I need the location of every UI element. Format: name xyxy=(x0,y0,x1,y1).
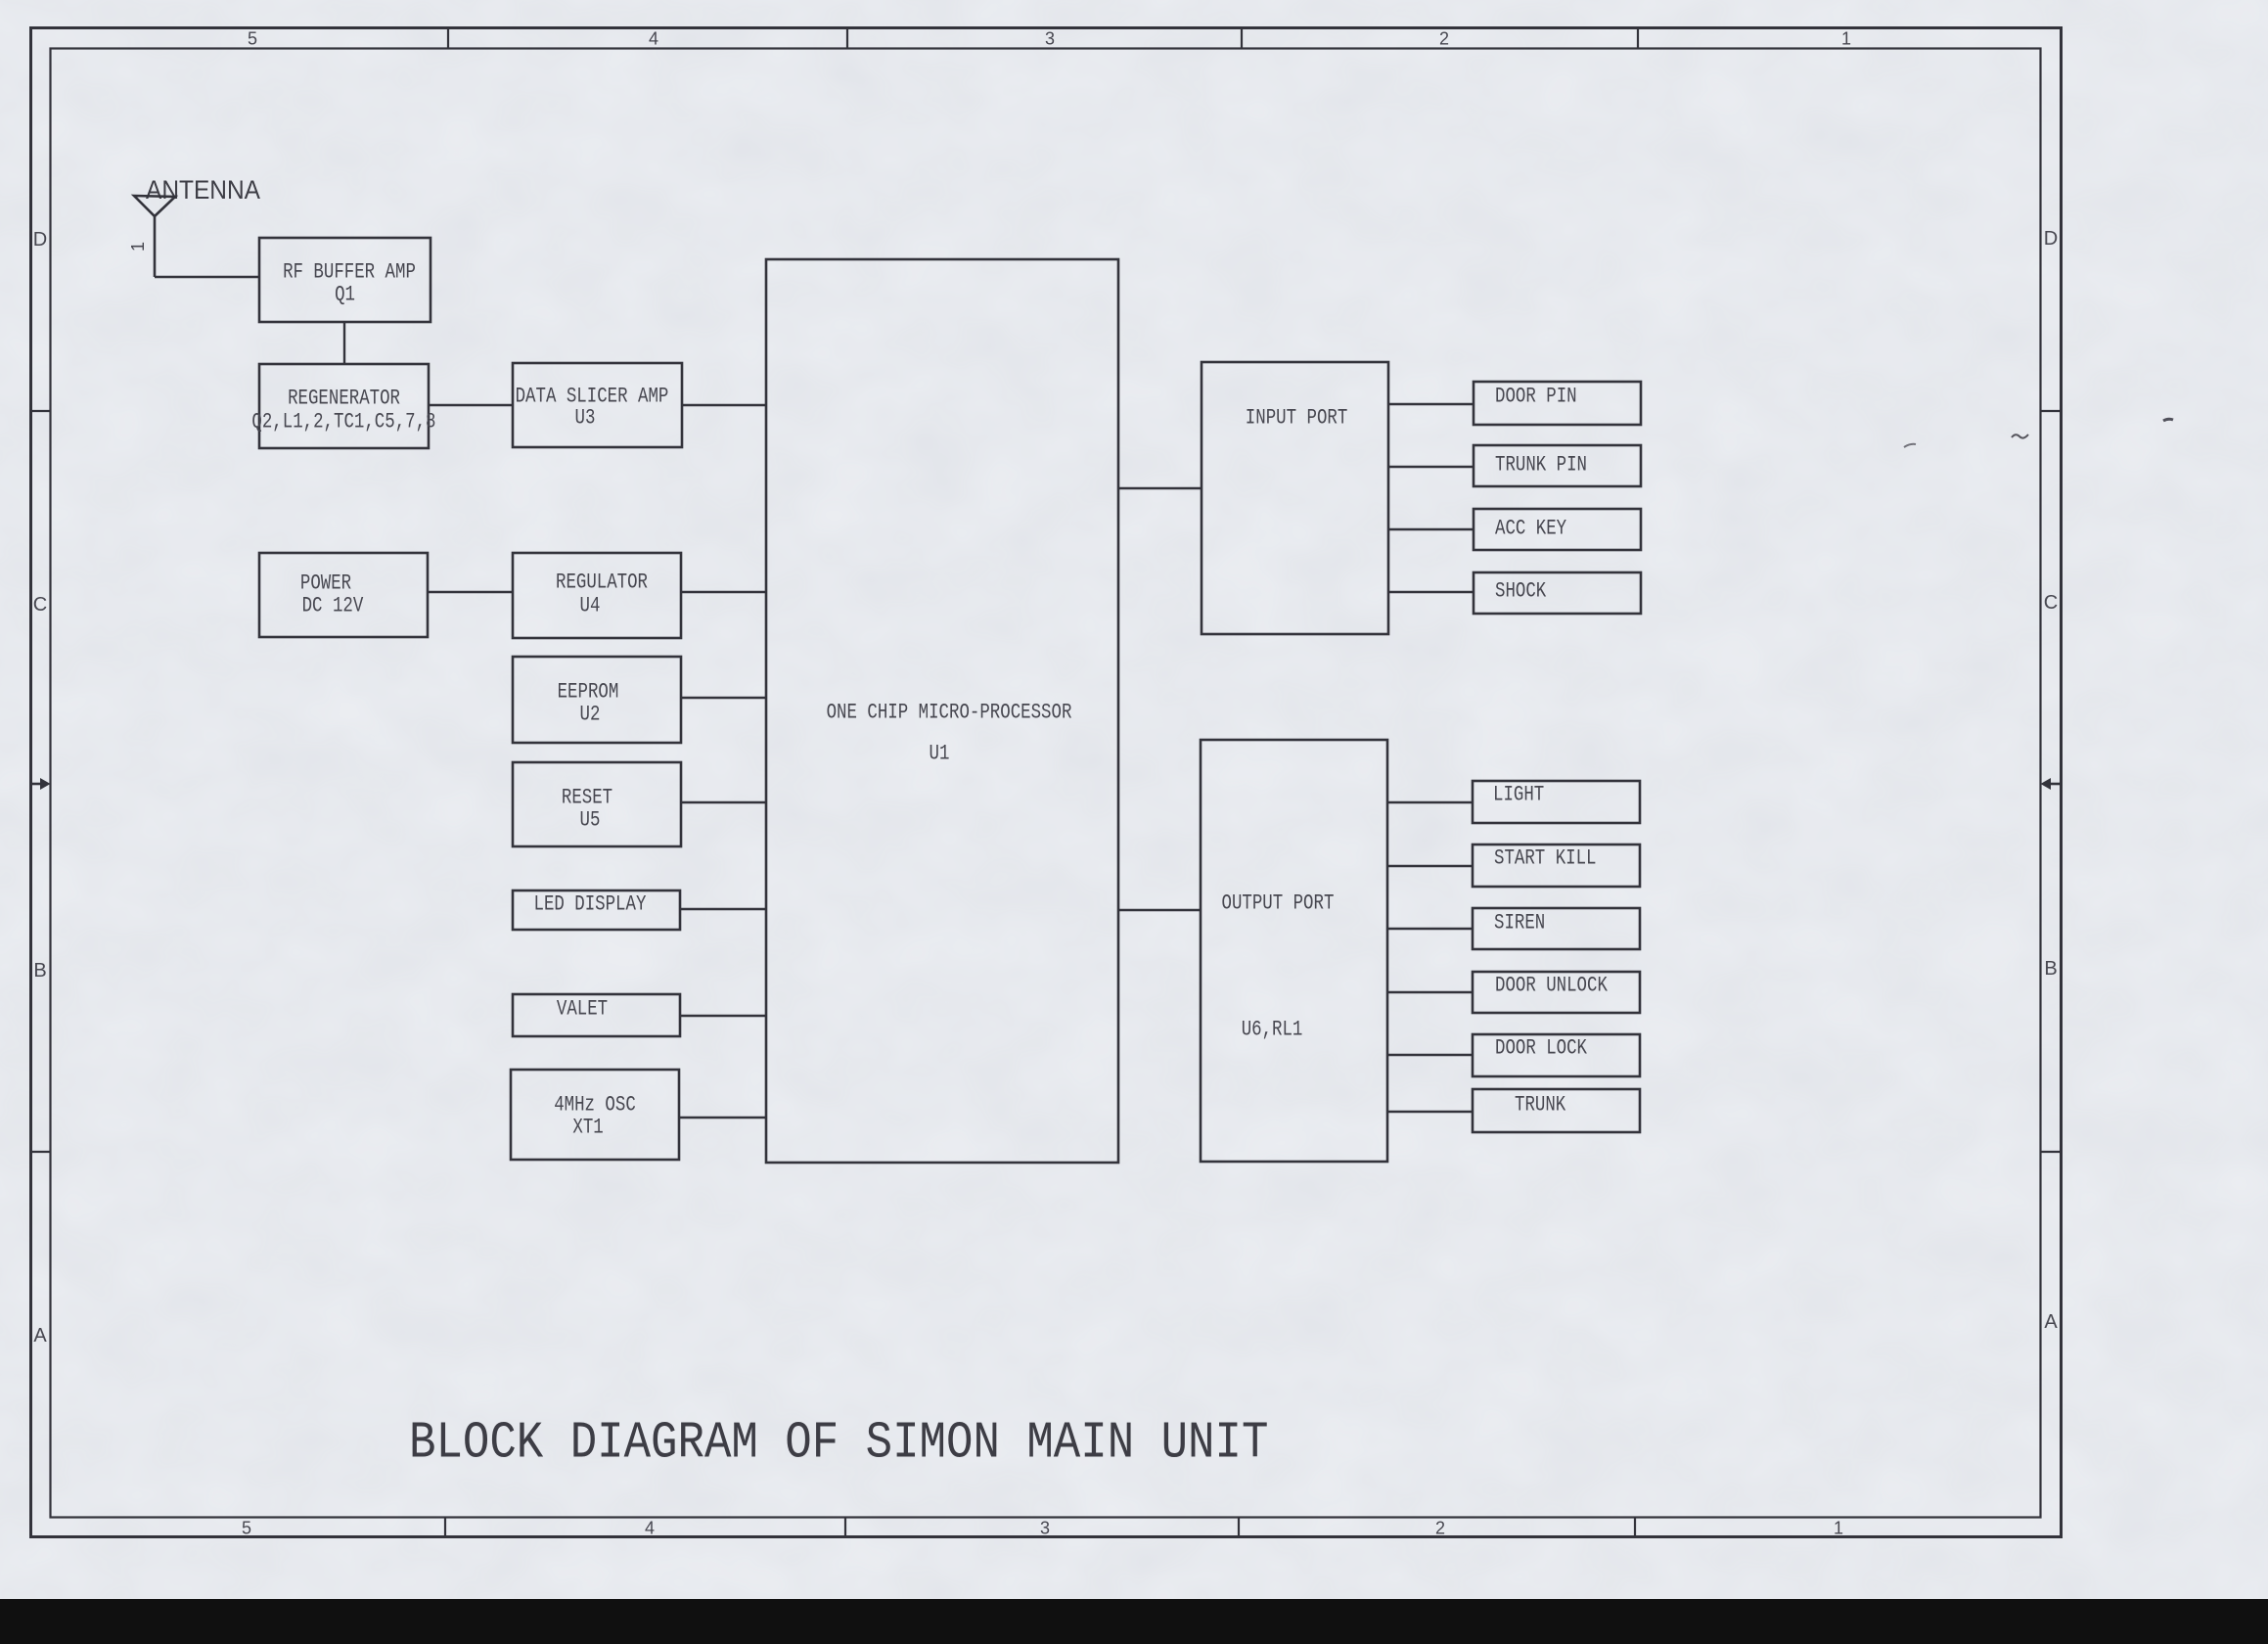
svg-text:2: 2 xyxy=(1439,28,1449,48)
svg-text:XT1: XT1 xyxy=(572,1115,603,1139)
svg-text:TRUNK: TRUNK xyxy=(1515,1092,1566,1117)
svg-text:4MHz OSC: 4MHz OSC xyxy=(554,1092,636,1117)
svg-text:C: C xyxy=(2044,592,2058,614)
svg-text:C: C xyxy=(33,594,47,616)
svg-text:1: 1 xyxy=(1841,28,1851,48)
svg-text:5: 5 xyxy=(242,1518,251,1537)
svg-text:B: B xyxy=(2044,958,2057,980)
svg-text:3: 3 xyxy=(1040,1518,1050,1537)
svg-text:EEPROM: EEPROM xyxy=(558,679,619,704)
svg-text:ANTENNA: ANTENNA xyxy=(146,175,260,205)
svg-text:B: B xyxy=(33,960,46,982)
svg-text:ACC KEY: ACC KEY xyxy=(1495,516,1566,540)
svg-text:3: 3 xyxy=(1045,28,1055,48)
svg-text:1: 1 xyxy=(128,242,148,251)
svg-text:U6,RL1: U6,RL1 xyxy=(1242,1017,1303,1041)
svg-text:DOOR PIN: DOOR PIN xyxy=(1495,384,1577,408)
svg-text:INPUT PORT: INPUT PORT xyxy=(1246,405,1348,430)
svg-text:RF BUFFER AMP: RF BUFFER AMP xyxy=(283,259,416,284)
svg-text:DOOR LOCK: DOOR LOCK xyxy=(1495,1035,1588,1060)
svg-text:4: 4 xyxy=(645,1518,655,1537)
svg-text:START KILL: START KILL xyxy=(1494,845,1597,870)
svg-text:A: A xyxy=(2044,1311,2058,1333)
svg-text:2: 2 xyxy=(1435,1518,1445,1537)
svg-text:LED DISPLAY: LED DISPLAY xyxy=(534,891,647,916)
svg-text:SIREN: SIREN xyxy=(1494,910,1545,935)
svg-text:REGULATOR: REGULATOR xyxy=(556,570,648,594)
svg-text:DC 12V: DC 12V xyxy=(302,593,364,617)
svg-text:A: A xyxy=(33,1325,47,1347)
svg-text:OUTPUT PORT: OUTPUT PORT xyxy=(1222,890,1335,915)
svg-text:1: 1 xyxy=(1834,1518,1843,1537)
svg-text:5: 5 xyxy=(248,28,257,48)
svg-text:D: D xyxy=(2044,228,2058,250)
svg-text:LIGHT: LIGHT xyxy=(1493,782,1544,806)
svg-text:Q1: Q1 xyxy=(335,282,355,306)
svg-text:U3: U3 xyxy=(575,405,596,430)
svg-text:REGENERATOR: REGENERATOR xyxy=(288,386,400,410)
svg-text:D: D xyxy=(33,229,47,251)
svg-text:U2: U2 xyxy=(580,702,601,726)
svg-text:BLOCK DIAGRAM OF SIMON MAIN UN: BLOCK DIAGRAM OF SIMON MAIN UNIT xyxy=(409,1414,1268,1473)
svg-text:U4: U4 xyxy=(580,593,601,617)
svg-text:DOOR UNLOCK: DOOR UNLOCK xyxy=(1495,973,1609,997)
svg-text:4: 4 xyxy=(649,28,658,48)
svg-text:ONE CHIP MICRO-PROCESSOR: ONE CHIP MICRO-PROCESSOR xyxy=(827,700,1072,724)
svg-text:RESET: RESET xyxy=(562,785,612,809)
svg-text:POWER: POWER xyxy=(300,571,351,595)
svg-text:SHOCK: SHOCK xyxy=(1495,578,1547,603)
svg-text:U1: U1 xyxy=(930,741,950,765)
svg-text:VALET: VALET xyxy=(557,996,608,1021)
svg-text:TRUNK PIN: TRUNK PIN xyxy=(1495,452,1587,477)
svg-text:Q2,L1,2,TC1,C5,7,8: Q2,L1,2,TC1,C5,7,8 xyxy=(251,409,435,434)
svg-text:U5: U5 xyxy=(580,807,601,832)
